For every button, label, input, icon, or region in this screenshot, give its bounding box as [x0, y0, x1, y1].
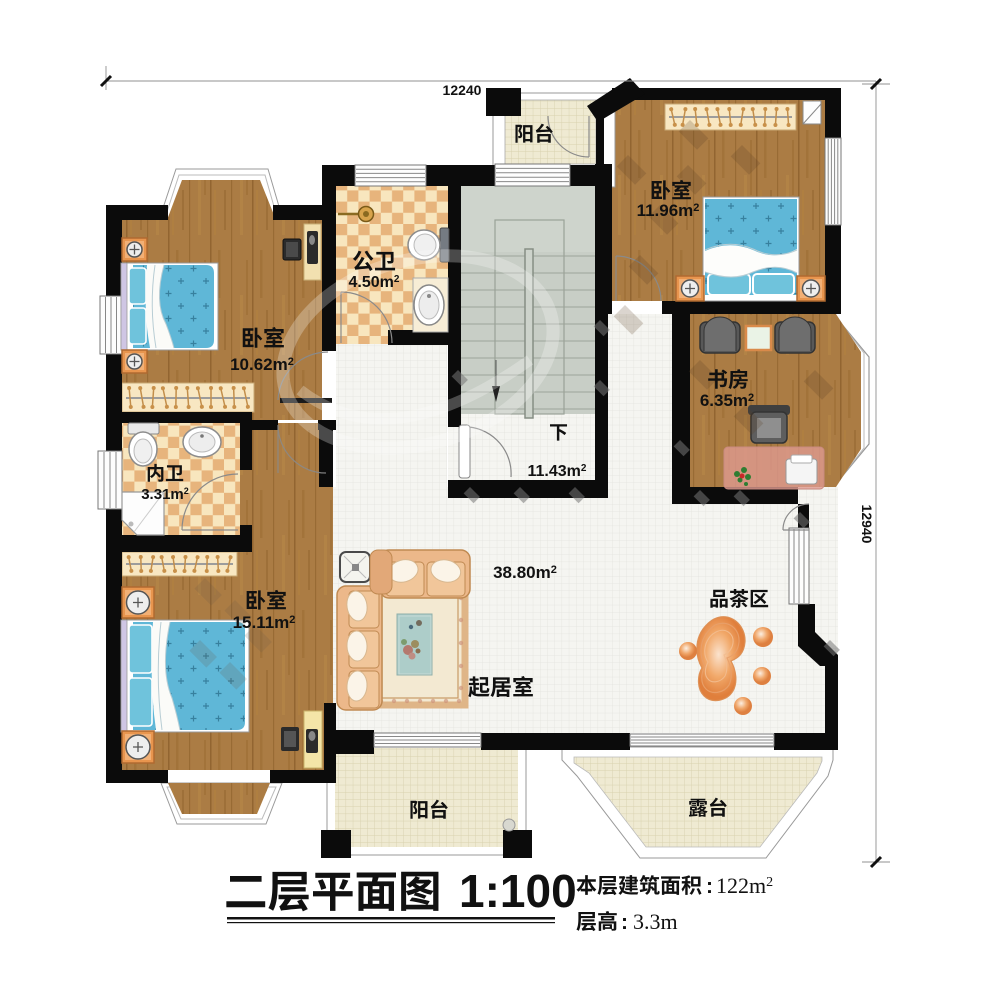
svg-text:12940: 12940 [859, 505, 875, 544]
svg-text:10.62m2: 10.62m2 [230, 355, 294, 374]
svg-text:1:100: 1:100 [459, 865, 577, 917]
svg-text:4.50m2: 4.50m2 [349, 274, 400, 291]
svg-text:3.3m: 3.3m [633, 909, 678, 934]
svg-text::: : [706, 875, 713, 898]
svg-text:122m2: 122m2 [716, 873, 773, 898]
svg-text:38.80m2: 38.80m2 [493, 563, 557, 582]
svg-text:11.43m2: 11.43m2 [528, 463, 587, 480]
svg-text:6.35m2: 6.35m2 [700, 391, 754, 410]
svg-text:12240: 12240 [443, 82, 482, 98]
svg-text:15.11m2: 15.11m2 [233, 613, 296, 632]
svg-text:3.31m2: 3.31m2 [141, 486, 189, 503]
svg-text:11.96m2: 11.96m2 [637, 201, 700, 220]
svg-text::: : [621, 911, 628, 934]
